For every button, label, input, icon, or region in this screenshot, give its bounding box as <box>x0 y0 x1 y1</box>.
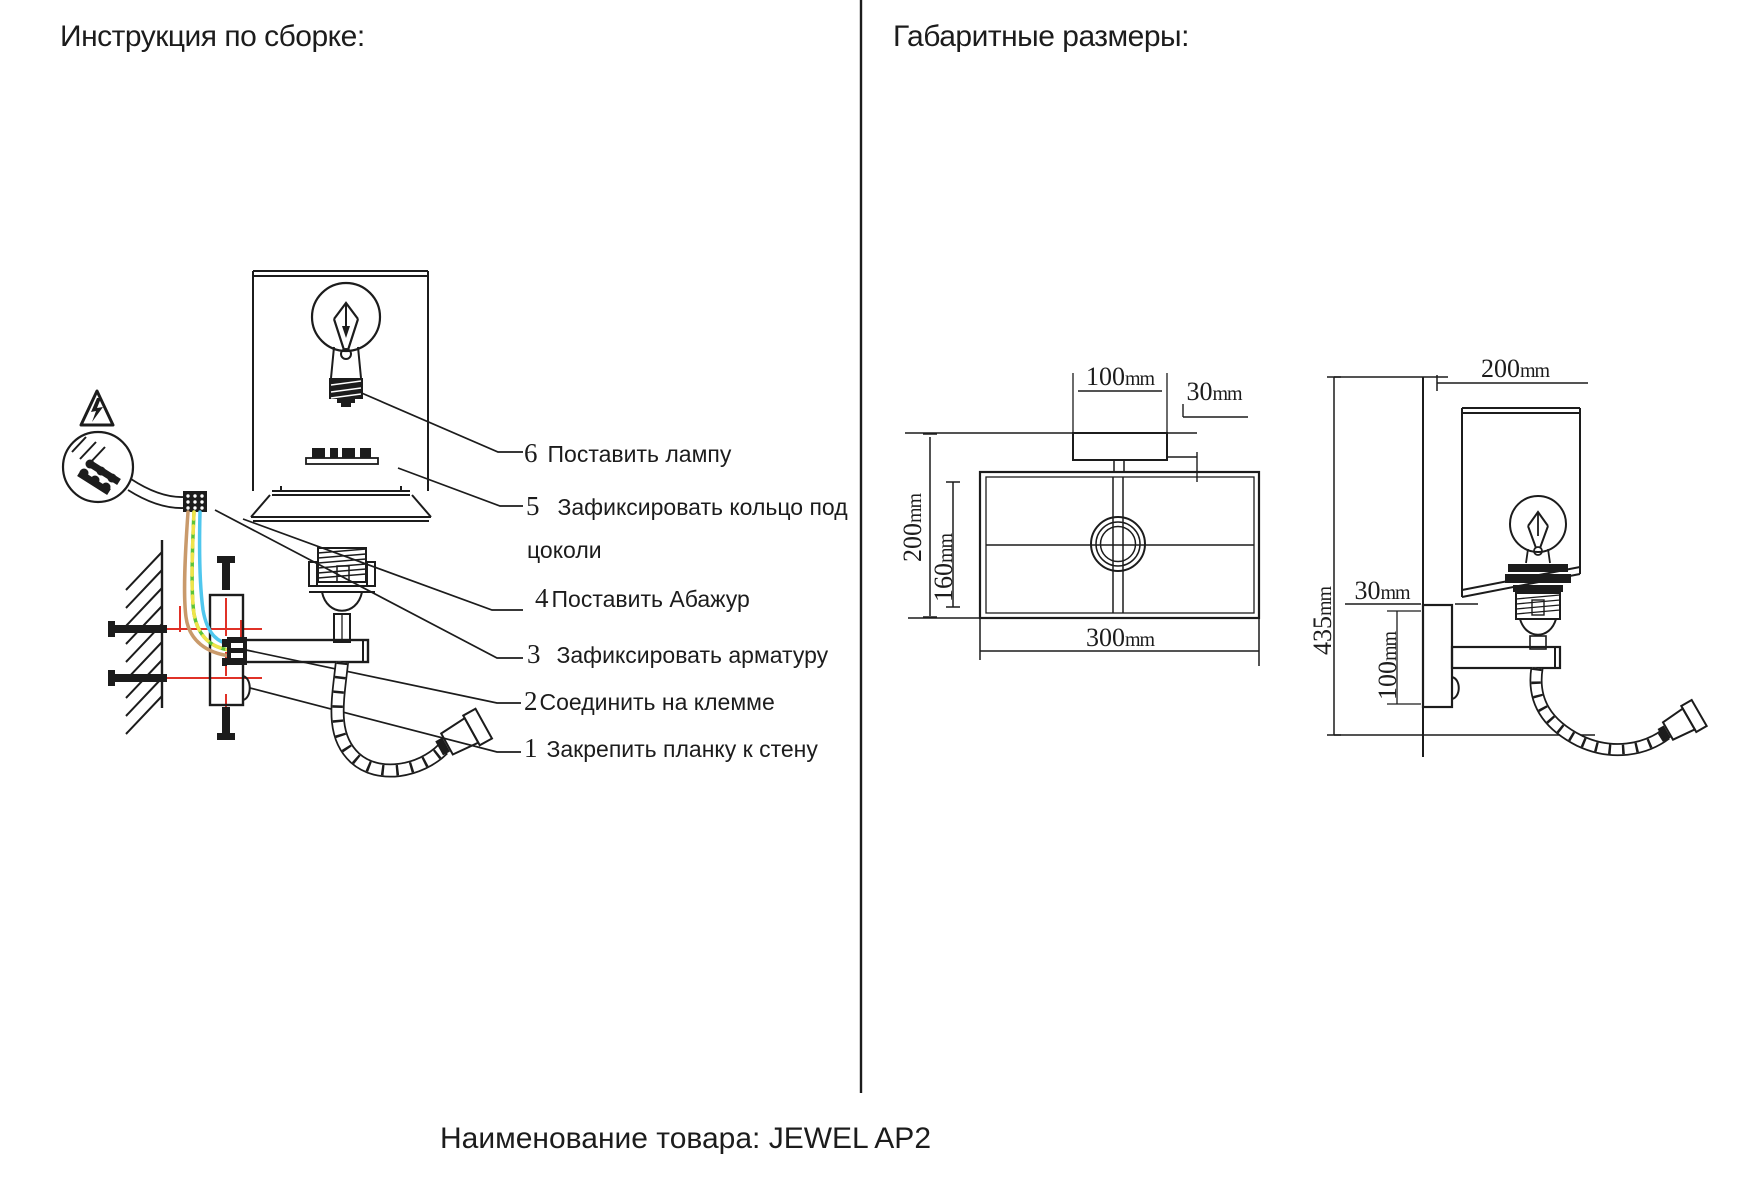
dim-offset: 30mm <box>1167 377 1248 482</box>
mount-arm <box>242 640 368 662</box>
dim-side-shade-width: 200mm <box>1437 354 1588 391</box>
svg-text:100mm: 100mm <box>1086 362 1156 391</box>
side-view-drawing: 200mm 435mm 30mm 100mm <box>1308 354 1707 757</box>
step-4: 4Поставить Абажур <box>535 583 750 613</box>
svg-text:30mm: 30mm <box>1186 377 1243 406</box>
leader-lines <box>215 388 523 752</box>
arm-side-view <box>1452 647 1560 668</box>
svg-text:435mm: 435mm <box>1308 585 1337 655</box>
magnifier-detail <box>63 432 184 508</box>
step-labels: 6Поставить лампу 5Зафиксировать кольцо п… <box>524 438 848 763</box>
instruction-sheet: Инструкция по сборке: Габаритные размеры… <box>0 0 1740 1200</box>
step-3: 3Зафиксировать арматуру <box>527 639 829 669</box>
svg-text:100mm: 100mm <box>1373 630 1402 700</box>
wall-hatching <box>126 540 162 734</box>
svg-text:200mm: 200mm <box>898 492 927 562</box>
light-bulb <box>312 283 380 407</box>
step-5: 5Зафиксировать кольцо под <box>526 491 848 521</box>
dim-shade-width: 300mm <box>980 618 1259 666</box>
terminal-block <box>183 491 207 512</box>
wire-connector <box>222 637 247 666</box>
technical-drawing-canvas: 6Поставить лампу 5Зафиксировать кольцо п… <box>0 0 1740 1200</box>
svg-text:300mm: 300mm <box>1086 623 1156 652</box>
dim-total-height: 435mm <box>1308 377 1341 735</box>
gooseneck-arm <box>338 662 443 771</box>
step-5-wrap: цоколи <box>527 537 602 563</box>
top-view-drawing: 100mm 30mm 200mm 160mm 300mm <box>898 362 1259 666</box>
plate-top-view <box>1073 433 1167 460</box>
svg-text:200mm: 200mm <box>1481 354 1551 383</box>
step-2: 2Соединить на клемме <box>524 686 775 716</box>
dim-plate-width: 100mm <box>1073 362 1167 433</box>
dim-wall-offset: 30mm <box>1345 576 1478 605</box>
socle-ring-fitting <box>306 448 378 464</box>
dim-plate-height: 100mm <box>1373 611 1421 704</box>
socket-assembly <box>309 548 375 642</box>
product-name: Наименование товара: JEWEL AP2 <box>440 1122 931 1156</box>
step-1: 1Закрепить планку к стену <box>524 733 818 763</box>
assembly-drawing: 6Поставить лампу 5Зафиксировать кольцо п… <box>63 271 848 771</box>
socket-side-view <box>1505 564 1571 649</box>
step-6: 6Поставить лампу <box>524 438 732 468</box>
bulb-side-view <box>1510 496 1566 563</box>
svg-text:160mm: 160mm <box>929 532 958 602</box>
socket-ring-top-view <box>1091 517 1145 571</box>
svg-text:30mm: 30mm <box>1354 576 1411 605</box>
gooseneck-side-view <box>1536 668 1666 750</box>
warning-triangle-icon <box>81 391 113 425</box>
plate-side-view <box>1423 605 1459 707</box>
dim-inner-depth: 160mm <box>929 482 960 607</box>
